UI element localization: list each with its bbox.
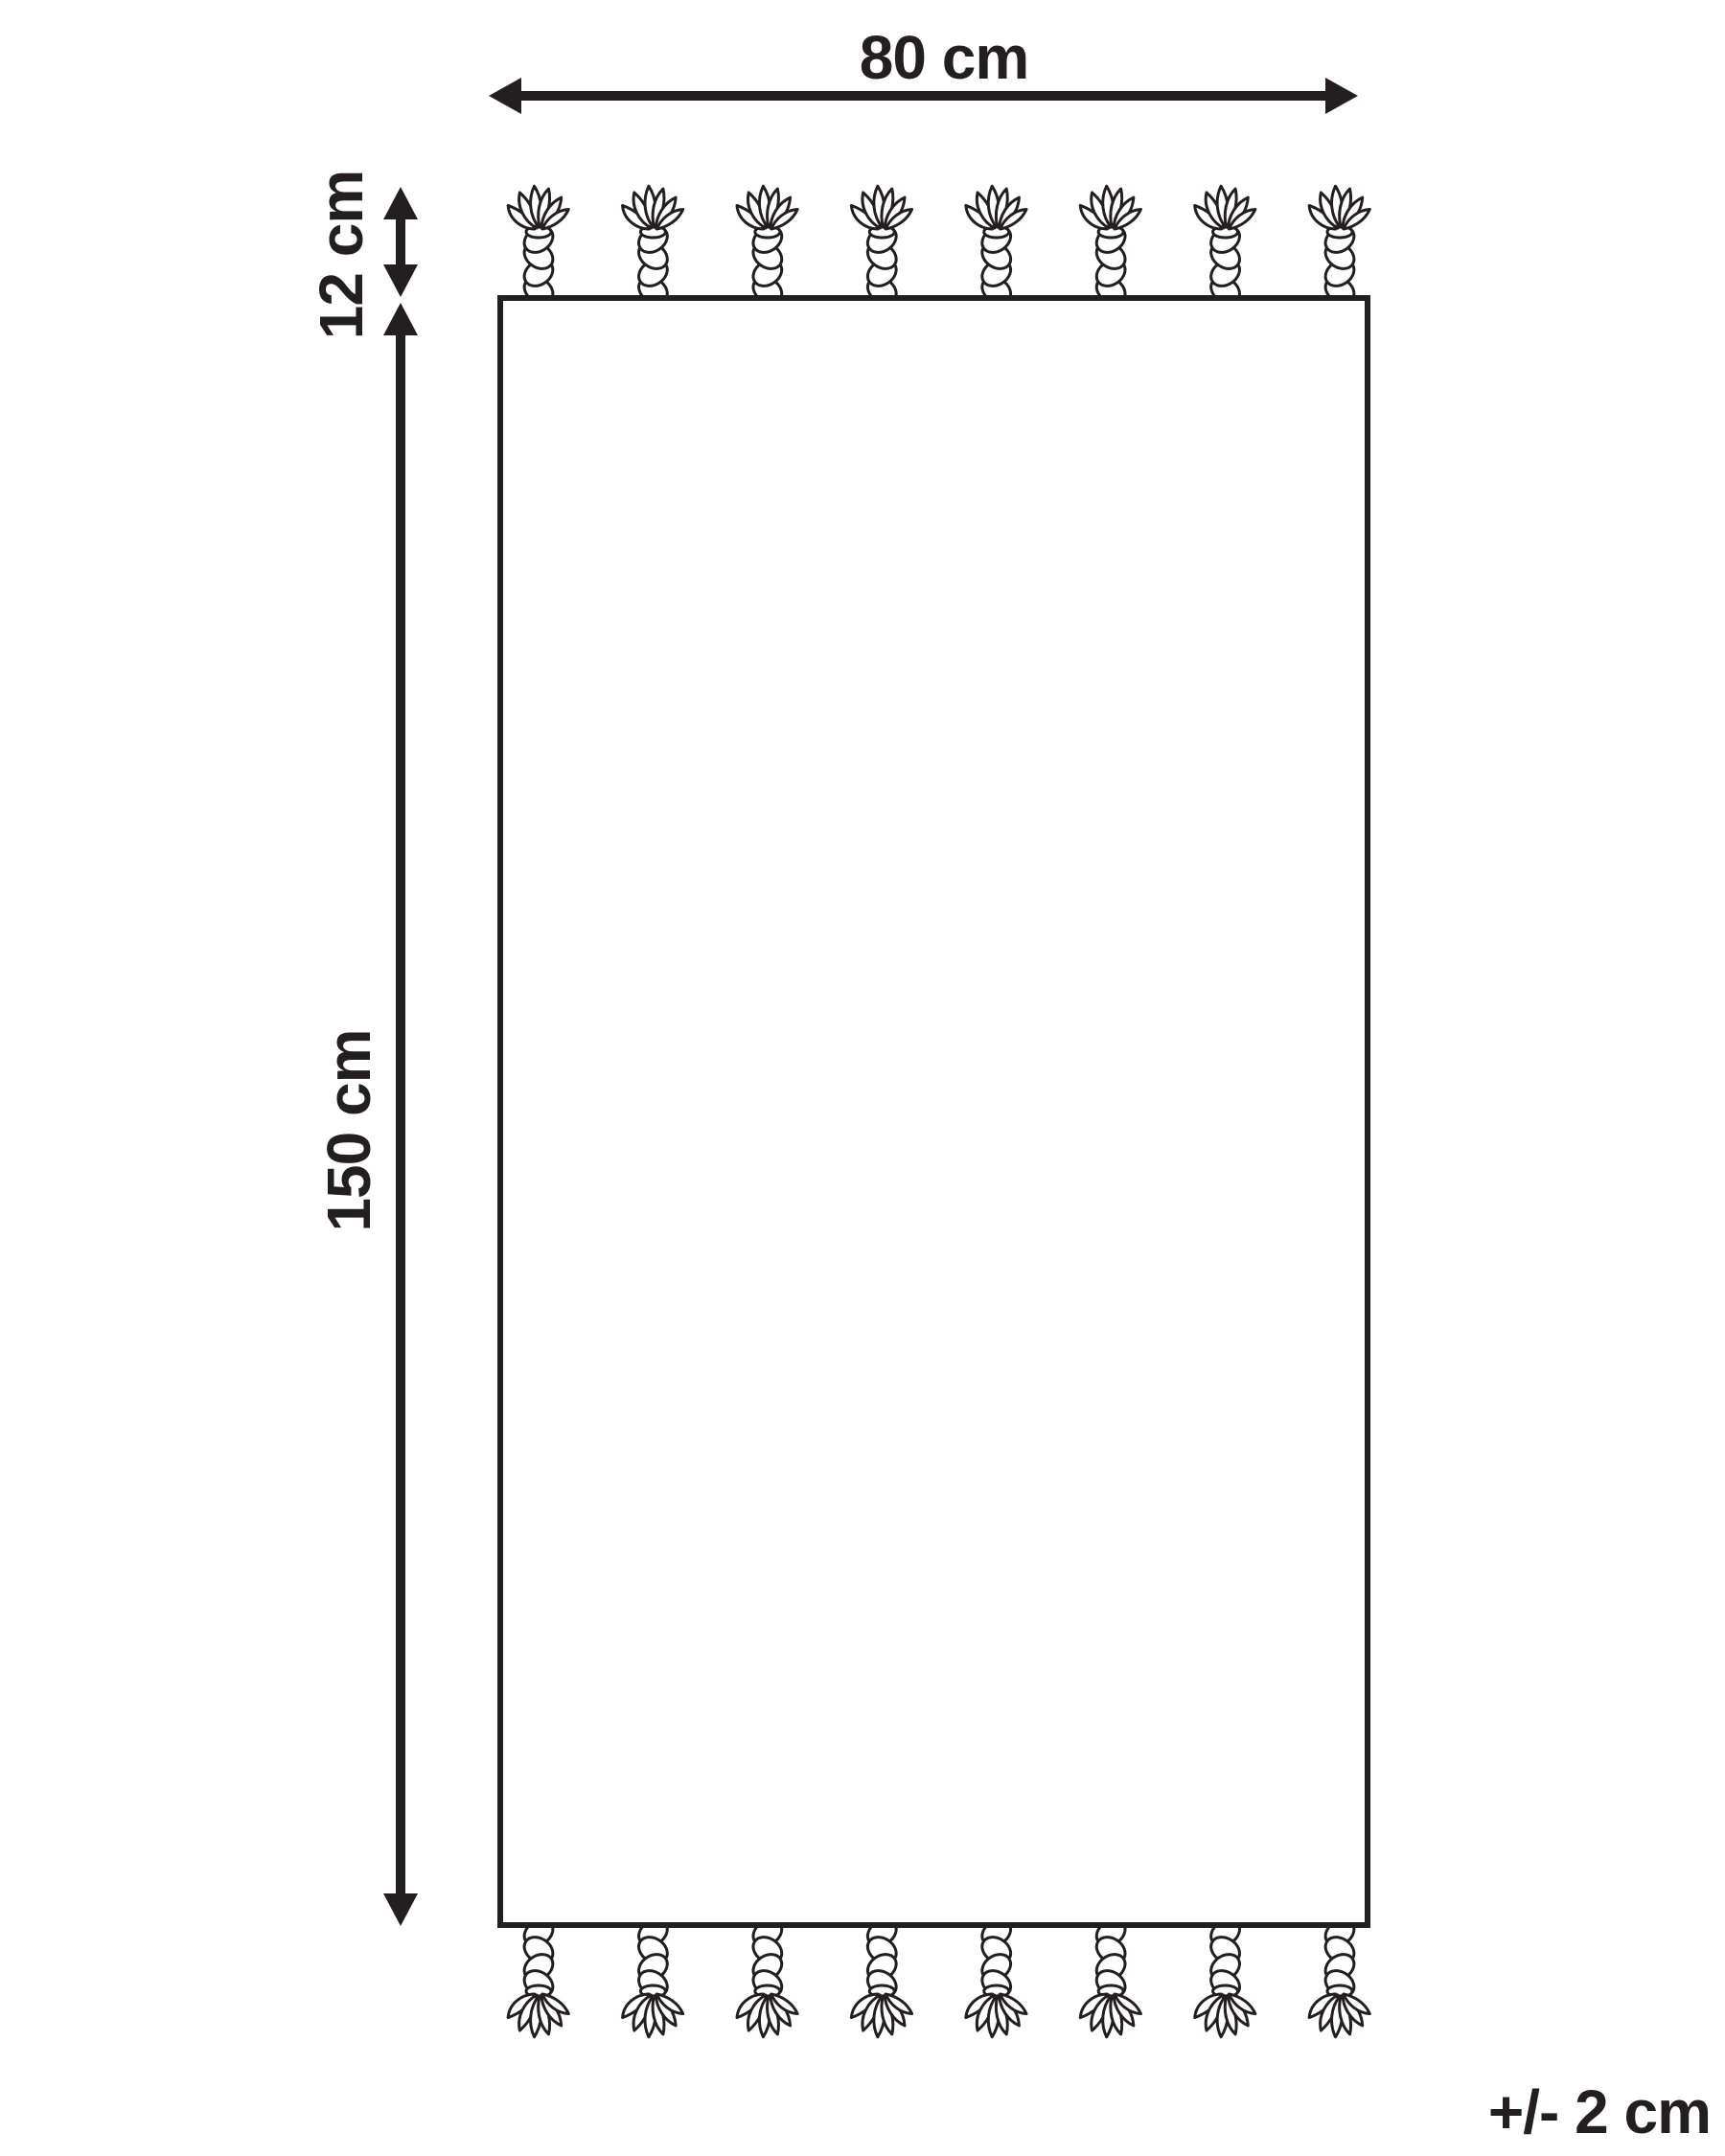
tassel-top-7 (1191, 186, 1257, 309)
width-label: 80 cm (860, 27, 1028, 88)
tassel-top-4 (847, 186, 913, 309)
tassel-bottom-5 (962, 1915, 1028, 2037)
tassel-top-8 (1305, 186, 1371, 309)
tassel-bottom-4 (847, 1915, 913, 2037)
tassel-top-3 (733, 186, 799, 309)
tassel-top-1 (504, 186, 570, 309)
tolerance-label: +/- 2 cm (1488, 2081, 1711, 2143)
length-dimension-arrow (383, 303, 418, 1926)
diagram-svg (0, 0, 1725, 2156)
tassel-bottom-6 (1076, 1915, 1142, 2037)
dimension-diagram: 80 cm 12 cm 150 cm +/- 2 cm (0, 0, 1725, 2156)
tassel-top-2 (618, 186, 684, 309)
tassel-top-6 (1076, 186, 1142, 309)
fringe-dimension-arrow (383, 187, 418, 297)
tassel-bottom-1 (504, 1915, 570, 2037)
tassel-bottom-2 (618, 1915, 684, 2037)
tassel-bottom-7 (1191, 1915, 1257, 2037)
tassel-top-5 (962, 186, 1028, 309)
fringe-label: 12 cm (310, 171, 372, 339)
tassel-bottom-3 (733, 1915, 799, 2037)
length-label: 150 cm (318, 1029, 379, 1231)
tassel-bottom-8 (1305, 1915, 1371, 2037)
rug-body (500, 298, 1368, 1925)
